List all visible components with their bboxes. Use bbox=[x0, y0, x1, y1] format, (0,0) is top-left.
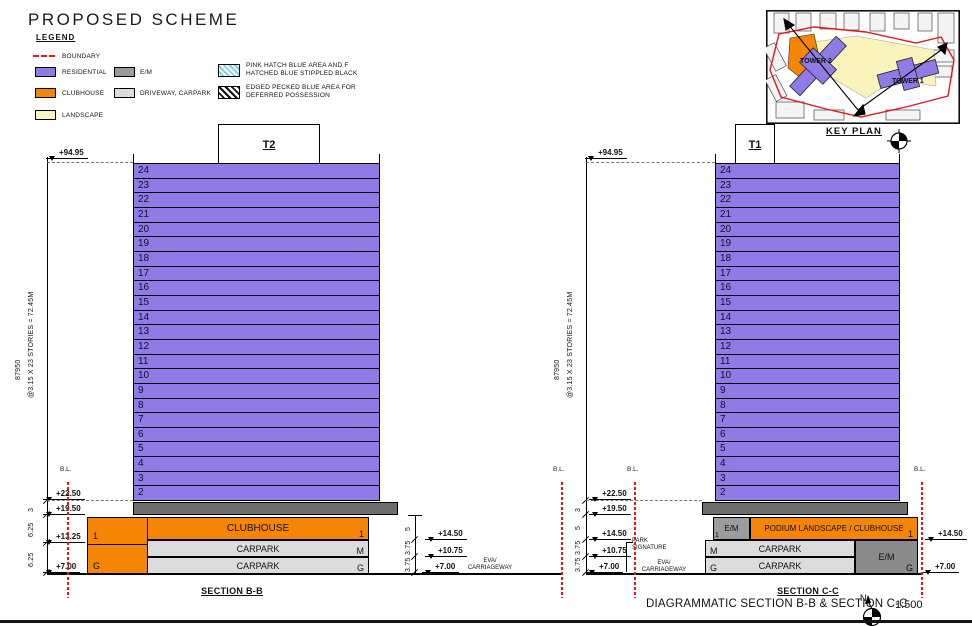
b-carpark-g-level: G bbox=[357, 563, 364, 573]
floor-number: 21 bbox=[138, 208, 149, 221]
c-carpark-g: CARPARK G bbox=[705, 557, 855, 574]
floor-number: 3 bbox=[138, 472, 144, 485]
b-tower-roof-box: T2 bbox=[218, 124, 320, 165]
b-carpark-m-label: CARPARK bbox=[148, 541, 368, 556]
floor-number: 21 bbox=[720, 208, 731, 221]
floor-number: 22 bbox=[138, 193, 149, 206]
keyplan-tower1-label: TOWER 1 bbox=[892, 78, 924, 85]
floor-number: 12 bbox=[720, 340, 731, 353]
floor-row: 14 bbox=[134, 310, 379, 325]
floor-number: 10 bbox=[720, 369, 731, 382]
legend-hatch-blue-swatch bbox=[218, 64, 240, 77]
legend-clubhouse-swatch bbox=[35, 88, 56, 98]
floor-row: 17 bbox=[134, 266, 379, 281]
floor-number: 7 bbox=[138, 413, 144, 426]
legend-residential-label: RESIDENTIAL bbox=[62, 69, 107, 76]
floor-number: 2 bbox=[720, 486, 726, 499]
floor-number: 12 bbox=[138, 340, 149, 353]
b-dim-storeys: @3.15 X 23 STORIES = 72.45M bbox=[28, 292, 35, 398]
c-carpark-m-level: M bbox=[710, 546, 718, 556]
floor-number: 8 bbox=[720, 399, 726, 412]
floor-number: 19 bbox=[138, 237, 149, 250]
floor-row: 5 bbox=[716, 441, 899, 456]
b-tower: 24232221201918171615141312111098765432 bbox=[133, 163, 380, 501]
floor-number: 13 bbox=[720, 325, 731, 338]
floor-number: 4 bbox=[138, 457, 144, 470]
floor-row: 12 bbox=[134, 339, 379, 354]
floor-row: 3 bbox=[716, 471, 899, 486]
b-bl-right-label: B.L. bbox=[553, 466, 565, 473]
floor-row: 9 bbox=[134, 383, 379, 398]
b-level-700: +7.00 bbox=[43, 562, 80, 573]
floor-row: 14 bbox=[716, 310, 899, 325]
c-tower-roof-box: T1 bbox=[735, 124, 775, 165]
floor-number: 14 bbox=[138, 311, 149, 324]
floor-number: 11 bbox=[138, 355, 148, 368]
b-dim-625a: 6.25 bbox=[28, 523, 35, 537]
legend-clubhouse-label: CLUBHOUSE bbox=[62, 90, 104, 97]
c-top-tick-left bbox=[715, 154, 716, 163]
floor-number: 16 bbox=[138, 281, 149, 294]
keyplan-tower2-label: TOWER 2 bbox=[800, 58, 832, 65]
c-dim-storeys: @3.15 X 23 STORIES = 72.45M bbox=[567, 292, 574, 398]
floor-row: 2 bbox=[134, 485, 379, 500]
c-2250-dash bbox=[586, 500, 702, 501]
floor-number: 5 bbox=[720, 442, 726, 455]
c-level-top: +94.95 bbox=[585, 148, 627, 159]
floor-number: 11 bbox=[720, 355, 730, 368]
c-transfer-band bbox=[702, 502, 908, 515]
floor-row: 20 bbox=[134, 222, 379, 237]
floor-row: 19 bbox=[716, 236, 899, 251]
floor-number: 17 bbox=[720, 267, 731, 280]
b-2250-dash bbox=[47, 500, 133, 501]
floor-number: 2 bbox=[138, 486, 144, 499]
floor-row: 5 bbox=[134, 441, 379, 456]
floor-row: 4 bbox=[134, 456, 379, 471]
floor-number: 4 bbox=[720, 457, 726, 470]
b-dim-625b: 6.25 bbox=[28, 553, 35, 567]
floor-number: 6 bbox=[720, 428, 726, 441]
legend-landscape-label: LANDSCAPE bbox=[62, 112, 103, 119]
c-em-small-box: E/M 1 bbox=[713, 517, 750, 540]
c-park-signature-leader bbox=[626, 542, 633, 572]
floor-row: 9 bbox=[716, 383, 899, 398]
drawing-sheet: PROPOSED SCHEME LEGEND BOUNDARY RESIDENT… bbox=[0, 0, 972, 626]
floor-number: 18 bbox=[138, 252, 149, 265]
b-carpark-m-level: M bbox=[357, 546, 365, 556]
b-bl-right-line bbox=[561, 482, 563, 598]
b-clubhouse-label: CLUBHOUSE bbox=[148, 518, 368, 539]
b-eva-line1: EVA/ bbox=[483, 558, 496, 564]
floor-row: 16 bbox=[134, 280, 379, 295]
c-dim-375b: 3.75 bbox=[575, 558, 582, 572]
legend-em-label: E/M bbox=[140, 69, 152, 76]
floor-number: 13 bbox=[138, 325, 149, 338]
page-title: PROPOSED SCHEME bbox=[28, 10, 239, 30]
floor-row: 13 bbox=[134, 324, 379, 339]
c-podium-label: PODIUM LANDSCAPE / CLUBHOUSE bbox=[751, 518, 917, 539]
c-dim-375a: 3.75 bbox=[575, 541, 582, 555]
c-carpark-g-label: CARPARK bbox=[706, 558, 854, 573]
legend-boundary-label: BOUNDARY bbox=[62, 53, 100, 60]
floor-row: 10 bbox=[134, 368, 379, 383]
legend-driveway-swatch bbox=[114, 88, 135, 98]
b-column-level-line bbox=[88, 544, 147, 545]
c-dim-3: 3 bbox=[575, 508, 582, 512]
b-level-top: +94.95 bbox=[46, 148, 88, 159]
c-em-big-box: E/M G bbox=[855, 540, 918, 574]
floor-number: 15 bbox=[720, 296, 731, 309]
floor-number: 20 bbox=[138, 223, 149, 236]
c-bl-left-line bbox=[634, 482, 636, 598]
floor-row: 11 bbox=[716, 354, 899, 369]
floor-row: 23 bbox=[134, 178, 379, 193]
floor-number: 23 bbox=[138, 179, 149, 192]
c-roof-dash bbox=[586, 162, 715, 163]
b-carpark-m: CARPARK M bbox=[147, 540, 369, 557]
floor-row: 10 bbox=[716, 368, 899, 383]
floor-number: 6 bbox=[138, 428, 144, 441]
c-podium-band: PODIUM LANDSCAPE / CLUBHOUSE 1 bbox=[750, 517, 918, 540]
b-carpark-g: CARPARK G bbox=[147, 557, 369, 574]
c-right-level-1450: +14.50 bbox=[925, 529, 967, 540]
b-bl-left-label: B.L. bbox=[60, 466, 72, 473]
floor-row: 24 bbox=[716, 164, 899, 178]
key-plan-map: TOWER 2 TOWER 1 bbox=[766, 10, 960, 124]
floor-number: 3 bbox=[720, 472, 726, 485]
floor-number: 9 bbox=[138, 384, 144, 397]
floor-number: 19 bbox=[720, 237, 731, 250]
scale-label: 1:500 bbox=[895, 599, 923, 611]
legend-hatch-black-label-2: DEFERRED POSSESSION bbox=[246, 92, 330, 99]
c-carpark-m-label: CARPARK bbox=[706, 541, 854, 556]
floor-row: 7 bbox=[716, 412, 899, 427]
floor-row: 6 bbox=[134, 427, 379, 442]
b-dim-3: 3 bbox=[28, 508, 35, 512]
c-right-level-700: +7.00 bbox=[922, 562, 959, 573]
floor-row: 4 bbox=[716, 456, 899, 471]
legend-landscape-swatch bbox=[35, 110, 56, 120]
b-clubhouse-level-1: 1 bbox=[359, 529, 364, 539]
c-park-sig-line2: SIGNATURE bbox=[632, 545, 667, 551]
legend-hatch-blue-label-1: PINK HATCH BLUE AREA AND F bbox=[246, 62, 349, 69]
c-section-label: SECTION C-C bbox=[768, 586, 848, 596]
floor-number: 22 bbox=[720, 193, 731, 206]
floor-number: 9 bbox=[720, 384, 726, 397]
legend-hatch-black-label-1: EDGED PECKED BLUE AREA FOR bbox=[246, 84, 356, 91]
c-park-signature-label: PARK SIGNATURE bbox=[632, 538, 676, 552]
floor-row: 22 bbox=[716, 192, 899, 207]
c-carpark-g-level: G bbox=[710, 563, 717, 573]
c-level-1075: +10.75 bbox=[589, 546, 631, 557]
c-em-big-ground: G bbox=[906, 563, 913, 573]
floor-number: 24 bbox=[138, 164, 149, 177]
floor-row: 17 bbox=[716, 266, 899, 281]
floor-row: 15 bbox=[716, 295, 899, 310]
keyplan-label: KEY PLAN bbox=[826, 126, 882, 137]
floor-row: 8 bbox=[134, 398, 379, 413]
b-eva-label: EVA/ CARRIAGEWAY bbox=[458, 558, 522, 572]
c-tower: 24232221201918171615141312111098765432 bbox=[715, 163, 900, 501]
c-dim-height: 87950 bbox=[554, 360, 561, 380]
b-top-tick-left bbox=[133, 154, 134, 163]
floor-number: 18 bbox=[720, 252, 731, 265]
b-level-1950: +19.50 bbox=[43, 504, 85, 515]
c-carpark-m: CARPARK M bbox=[705, 540, 855, 557]
b-roof-dash bbox=[47, 162, 133, 163]
floor-number: 23 bbox=[720, 179, 731, 192]
b-eva-line2: CARRIAGEWAY bbox=[468, 565, 512, 571]
floor-number: 7 bbox=[720, 413, 726, 426]
c-level-700: +7.00 bbox=[586, 562, 623, 573]
c-eva-line1: EVA/ bbox=[657, 560, 670, 566]
floor-row: 21 bbox=[134, 207, 379, 222]
b-ground-line bbox=[47, 573, 562, 575]
floor-row: 18 bbox=[134, 251, 379, 266]
c-ground-line bbox=[586, 573, 922, 575]
floor-row: 2 bbox=[716, 485, 899, 500]
floor-row: 18 bbox=[716, 251, 899, 266]
b-dim-5: 5 bbox=[405, 527, 412, 531]
c-level-2250: +22.50 bbox=[589, 489, 631, 500]
c-level-1450: +14.50 bbox=[589, 529, 631, 540]
b-column-ground-label: G bbox=[93, 561, 100, 571]
b-clubhouse-column: 1 G bbox=[87, 517, 148, 574]
floor-number: 17 bbox=[138, 267, 149, 280]
legend-driveway-label: DRIVEWAY, CARPARK bbox=[140, 90, 211, 97]
north-label: N bbox=[860, 593, 867, 603]
floor-row: 7 bbox=[134, 412, 379, 427]
c-level-1950: +19.50 bbox=[589, 504, 631, 515]
floor-number: 15 bbox=[138, 296, 149, 309]
floor-row: 6 bbox=[716, 427, 899, 442]
c-top-tick-right bbox=[899, 154, 900, 163]
c-tower-label: T1 bbox=[749, 139, 762, 151]
floor-row: 20 bbox=[716, 222, 899, 237]
b-level-1325: +13.25 bbox=[43, 532, 85, 543]
b-tower-label: T2 bbox=[263, 139, 276, 151]
b-right-level-1075: +10.75 bbox=[425, 546, 467, 557]
b-bl-left-line bbox=[67, 482, 69, 598]
floor-number: 8 bbox=[138, 399, 144, 412]
legend-heading: LEGEND bbox=[36, 33, 75, 42]
floor-row: 22 bbox=[134, 192, 379, 207]
c-bl-left-label: B.L. bbox=[627, 466, 639, 473]
legend-residential-swatch bbox=[35, 67, 56, 77]
b-right-level-700: +7.00 bbox=[422, 562, 459, 573]
b-clubhouse-band: CLUBHOUSE 1 bbox=[147, 517, 369, 540]
floor-number: 14 bbox=[720, 311, 731, 324]
c-bl-right-label: B.L. bbox=[914, 466, 926, 473]
b-dim-height: 87950 bbox=[15, 360, 22, 380]
c-em-small-label: E/M bbox=[714, 518, 749, 539]
floor-row: 3 bbox=[134, 471, 379, 486]
b-transfer-band bbox=[133, 502, 398, 515]
c-em-small-level: 1 bbox=[715, 532, 719, 539]
floor-number: 24 bbox=[720, 164, 731, 177]
floor-row: 15 bbox=[134, 295, 379, 310]
b-right-level-1450: +14.50 bbox=[425, 529, 467, 540]
c-bl-right-line bbox=[921, 482, 923, 598]
floor-row: 13 bbox=[716, 324, 899, 339]
b-top-tick-right bbox=[379, 154, 380, 163]
floor-number: 20 bbox=[720, 223, 731, 236]
sheet-border-line bbox=[0, 620, 972, 623]
c-podium-level-1: 1 bbox=[908, 529, 913, 539]
b-right-dim-cap bbox=[408, 515, 422, 516]
floor-row: 16 bbox=[716, 280, 899, 295]
floor-number: 10 bbox=[138, 369, 149, 382]
c-dim-5: 5 bbox=[575, 526, 582, 530]
legend-hatch-blue-label-2: HATCHED BLUE STIPPLED BLACK bbox=[246, 70, 357, 77]
legend-em-swatch bbox=[114, 67, 135, 77]
floor-number: 16 bbox=[720, 281, 731, 294]
b-section-label: SECTION B-B bbox=[192, 586, 272, 596]
b-carpark-g-label: CARPARK bbox=[148, 558, 368, 573]
legend-hatch-black-swatch bbox=[218, 86, 240, 99]
floor-row: 23 bbox=[716, 178, 899, 193]
b-right-dim-line bbox=[415, 515, 416, 573]
floor-row: 12 bbox=[716, 339, 899, 354]
floor-row: 24 bbox=[134, 164, 379, 178]
keyplan-compass-icon bbox=[886, 128, 912, 154]
floor-row: 21 bbox=[716, 207, 899, 222]
floor-number: 5 bbox=[138, 442, 144, 455]
b-column-floor1-label: 1 bbox=[93, 531, 98, 541]
floor-row: 11 bbox=[134, 354, 379, 369]
floor-row: 19 bbox=[134, 236, 379, 251]
floor-row: 8 bbox=[716, 398, 899, 413]
c-eva-label: EVA/ CARRIAGEWAY bbox=[638, 560, 690, 574]
legend-boundary-swatch bbox=[33, 55, 55, 57]
